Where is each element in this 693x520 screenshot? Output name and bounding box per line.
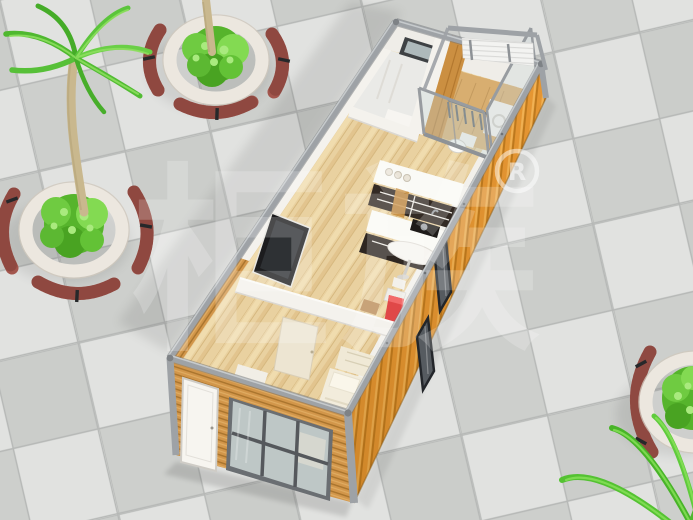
- entry-door: [181, 378, 218, 471]
- watermark: 柜族 R: [132, 147, 548, 380]
- registered-mark-letter: R: [508, 158, 526, 186]
- brand-watermark-text: 柜族: [132, 147, 548, 380]
- render-canvas: 柜族 R: [0, 0, 693, 520]
